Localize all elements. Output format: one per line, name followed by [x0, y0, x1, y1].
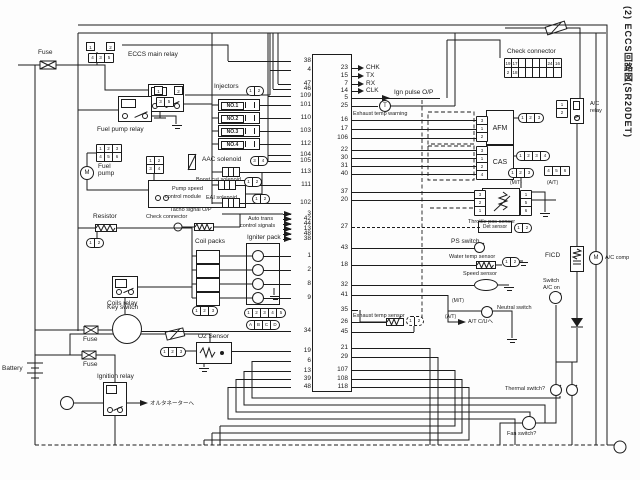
pump-module-connector-b: 34: [146, 164, 164, 174]
fuel-pump-motor-icon: M: [80, 166, 94, 180]
fuse-label-b: Fuse: [83, 336, 97, 344]
ecu-pin: 13: [244, 367, 311, 375]
ecu-pin: 109: [268, 92, 311, 100]
o2-sensor-box: [196, 342, 232, 364]
ecu-pin: 110: [260, 114, 311, 122]
ecu-pin: 40: [330, 170, 570, 178]
ecu-pin: 107: [330, 366, 570, 374]
ignition-relay-label: Ignition relay: [97, 373, 134, 381]
mt-label: (M/T): [510, 179, 522, 187]
coil-pack: [196, 250, 220, 264]
injector: NO.2: [218, 112, 260, 124]
igniter-pack-label: Igniter pack: [247, 234, 281, 242]
ecu-pin: 32: [330, 281, 570, 289]
ecu-pin: 39: [236, 375, 311, 383]
coil-pack-connector: 123: [192, 306, 218, 316]
ac-relay: [570, 98, 584, 124]
key-switch-label: Key switch: [107, 304, 138, 312]
ground-icon: [540, 213, 550, 219]
ecu-pin: 105: [268, 157, 311, 165]
injector: NO.3: [218, 125, 260, 137]
ps-switch-label: PS switch: [451, 238, 480, 246]
eccs-main-relay-label: ECCS main relay: [128, 51, 178, 59]
ecu-pin: 20: [330, 196, 570, 204]
fuse-label: Fuse: [38, 49, 52, 57]
ecu-pin: 45: [330, 328, 570, 336]
ac-relay-connector: 12: [556, 100, 568, 118]
injector: NO.1: [218, 99, 260, 111]
ground-icon: [270, 296, 280, 302]
mt-label-b: (M/T): [452, 297, 464, 305]
at-cu-label: A/T C/Uへ: [468, 318, 493, 326]
ign-pulse-label: Ign pulse O/P: [394, 89, 433, 97]
injector: NO.4: [218, 138, 260, 150]
ecu-pin: 112: [260, 140, 311, 148]
o2-sensor-label: O2 Sensor: [198, 333, 229, 341]
tacho-label: Tacho signal O/P: [170, 206, 212, 214]
water-temp-connector: 12: [502, 257, 520, 267]
side-title: (2) ECCS回路図(SR20DET): [622, 6, 635, 138]
at-label: (A/T): [547, 179, 558, 187]
throttle-pin-cells-left: 321: [474, 190, 486, 216]
aac-solenoid-label: AAC solenoid: [202, 156, 241, 164]
afm-connector: 123: [518, 113, 544, 123]
ecu-pin: 37: [330, 188, 570, 196]
ac-relay-label-b: relay: [590, 107, 602, 115]
igniter-connector: 12345: [244, 308, 286, 318]
ecu-pin: 18: [330, 261, 570, 269]
afm-pin-cells: 312: [476, 116, 488, 142]
exhaust-temp-connector: 12: [406, 316, 424, 326]
det-sensor-connector: 12: [514, 223, 532, 233]
ecu-pin: 21: [330, 344, 570, 352]
coil-packs-label: Coil packs: [195, 238, 225, 246]
battery-label: Battery: [2, 365, 23, 373]
thermal-switch-label: Thermal switch?: [505, 385, 545, 393]
cas-label: CAS: [493, 159, 507, 166]
ficd-label: FICD: [545, 252, 560, 260]
resistor-label: Resistor: [93, 213, 117, 221]
throttle-mt-connector: 123: [508, 168, 534, 178]
aac-connector: 34: [250, 156, 268, 166]
ecu-pin: 101: [260, 101, 311, 109]
ecu-pin: 113: [240, 168, 311, 176]
auto-trans-label-b: control signals: [240, 222, 275, 230]
neutral-switch-label: Neutral switch: [497, 304, 532, 312]
thermal-switch-icon: [550, 384, 562, 396]
ecu-pin: 19: [232, 347, 311, 355]
ecu-pin: 108: [330, 375, 570, 383]
throttle-pos-sensor-box: [482, 188, 520, 216]
ecu-pin: 31: [330, 162, 570, 170]
eccs-relay-connector: 12: [86, 42, 115, 51]
water-temp-resistor-box: [476, 261, 496, 269]
ground-icon: [199, 368, 209, 374]
fuel-pump-relay-label: Fuel pump relay: [97, 126, 144, 134]
ecu-pin: 17: [330, 125, 570, 133]
coil-pack: [196, 292, 220, 306]
coil-pack: [196, 264, 220, 278]
wiring-diagram: (2) ECCS回路図(SR20DET) 3844746109101110103…: [0, 0, 640, 480]
injectors-label: Injectors: [214, 83, 239, 91]
ecu-pin: 48: [228, 383, 311, 391]
fan-switch-label: Fan switch?: [507, 430, 536, 438]
check-connector-grid-b: 218: [504, 67, 562, 78]
ficd-box: [570, 246, 584, 272]
thermal-switch-icon: [566, 384, 578, 396]
ecu-pin: 103: [260, 127, 311, 135]
ecu-pin: 25: [330, 102, 570, 110]
ecu-pin: 38: [283, 235, 311, 243]
ecu-pin: 106: [330, 134, 570, 142]
throttle-at-connector: 456: [544, 166, 570, 176]
ignition-relay: [103, 382, 127, 416]
ecu-pin: 41: [330, 291, 570, 299]
neutral-switch-icon: [481, 306, 493, 318]
throttle-pin-cells-right: 156: [520, 190, 532, 216]
ecu-pin: 29: [330, 353, 570, 361]
speed-sensor-icon: [474, 279, 498, 291]
ecu-pin: 102: [240, 199, 311, 207]
resistor-connector: 12: [86, 238, 104, 248]
ground-icon: [507, 339, 517, 345]
check-connector-right-label: Check connector: [507, 48, 556, 56]
pump-module-label-b: control module: [165, 193, 201, 201]
aac-damper-icon: [188, 154, 196, 170]
coil-pack: [196, 278, 220, 292]
check-resistor-box: [194, 223, 214, 231]
throttle-pos-label: Throttle pos sensor: [468, 218, 515, 226]
o2-sensor-connector: 123: [160, 347, 186, 357]
ecu-pin: 27: [330, 223, 570, 231]
exhaust-warning-label: Exhaust temp warning: [353, 110, 407, 118]
eai-solenoid-label: EAI solenoid: [206, 194, 237, 202]
ac-switch-icon: [549, 291, 562, 304]
cas-connector: 1234: [516, 151, 550, 161]
ac-comp-label: A/C comp: [605, 254, 629, 262]
boost-cut-label: Boost cut solenoid: [196, 176, 241, 184]
check-connector-left-label: Check connector: [146, 213, 187, 221]
fuel-pump-relay-connector-b: 35: [156, 97, 174, 107]
ecu-pin: 38: [228, 57, 311, 65]
speed-sensor-label: Speed sensor: [463, 270, 497, 278]
igniter-connector-b: ABCD: [246, 320, 280, 330]
ecu-pin: 5: [330, 94, 570, 102]
boost-cut-connector: 12: [244, 177, 262, 187]
key-switch-icon: [112, 314, 142, 344]
afm-box: AFM: [486, 110, 514, 146]
fuel-pump-relay: [118, 96, 152, 122]
fuel-pump-relay-connector: 12: [154, 86, 183, 95]
injector-connector: 12: [246, 86, 264, 96]
eccs-relay-connector-b: 435: [88, 53, 114, 63]
eai-connector: 12: [252, 194, 270, 204]
ecu-pin: 6: [252, 357, 311, 365]
ac-compressor-motor-icon: M: [589, 251, 603, 265]
fuse-label-c: Fuse: [83, 361, 97, 369]
to-alternator-label: オルタネーターへ: [150, 400, 194, 408]
ac-switch-label-b: A/C on: [543, 284, 560, 292]
fan-switch-icon: [522, 416, 536, 430]
exhaust-temp-sensor-label: Exhaust temp sensor: [353, 312, 405, 320]
at-label-b: (A/T): [445, 313, 456, 321]
fuel-pump-label-b: pump: [98, 170, 114, 178]
ground-icon: [172, 125, 182, 131]
ecu-pin: 43: [330, 244, 570, 252]
water-temp-label: Water temp sensor: [449, 253, 495, 261]
fuel-pump-connector-b: 456: [96, 152, 122, 162]
afm-label: AFM: [493, 125, 508, 132]
pump-module-label: Pump speed: [172, 185, 203, 193]
resistor-box: [95, 224, 117, 232]
coils-relay: [112, 276, 138, 298]
ground-icon: [504, 287, 514, 293]
ecu-pin: 4: [270, 66, 311, 74]
cas-pin-cells: 3124: [476, 146, 488, 180]
ignition-coil-icon: [60, 396, 74, 410]
